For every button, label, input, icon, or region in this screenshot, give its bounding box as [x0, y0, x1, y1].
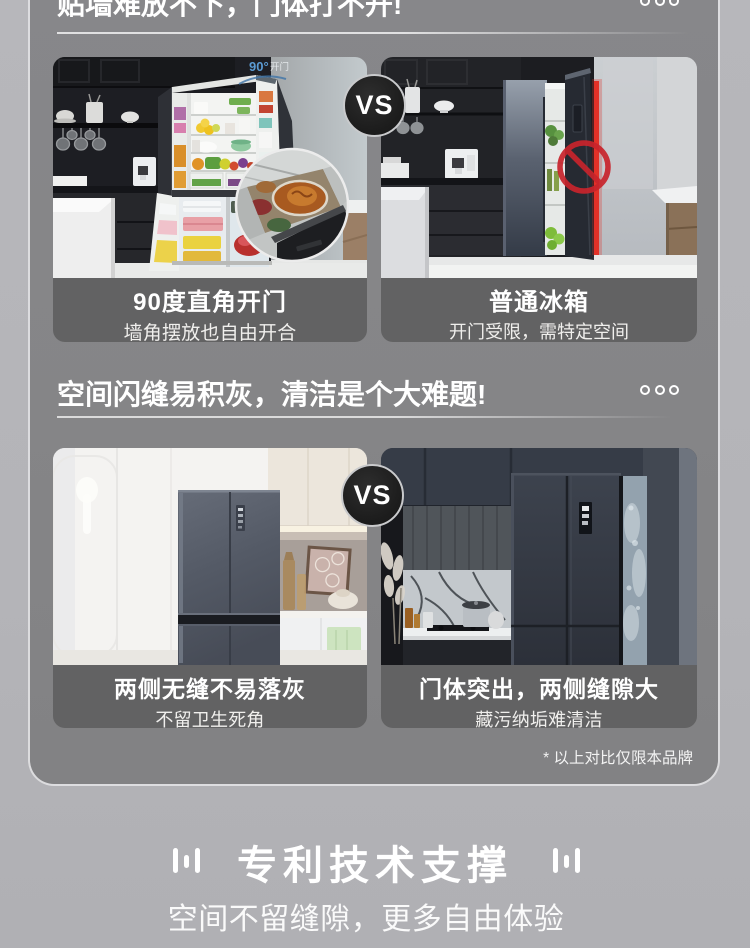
- svg-text:90°: 90°: [249, 59, 269, 74]
- svg-text:开门: 开门: [270, 61, 289, 73]
